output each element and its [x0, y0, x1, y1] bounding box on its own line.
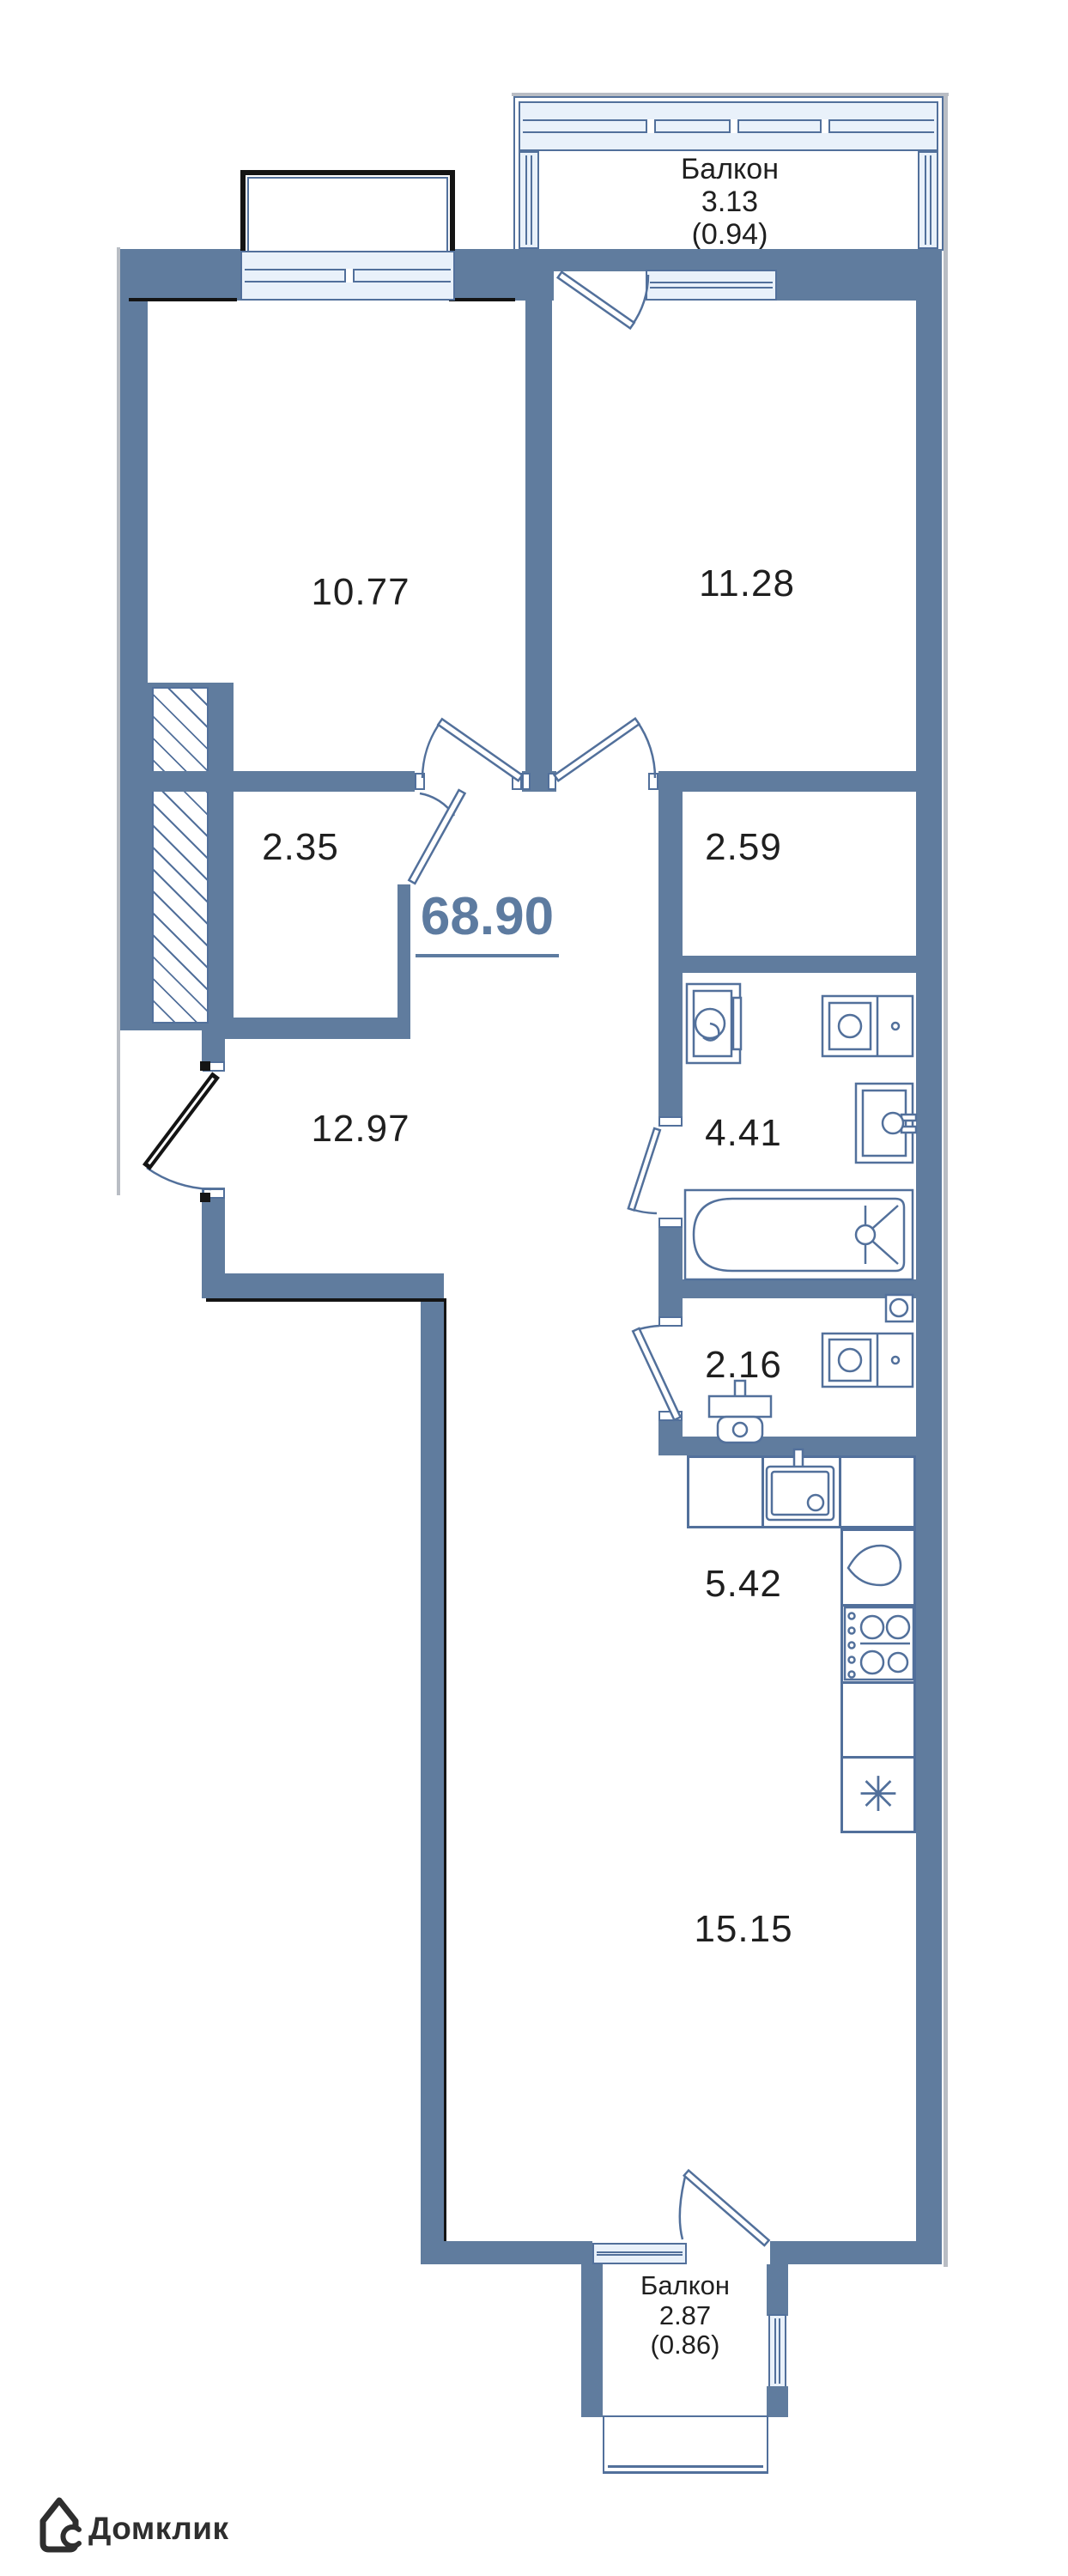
- door-balcony-bottom: [680, 2171, 769, 2245]
- total-area-value: 68.90: [416, 886, 559, 957]
- plan-overlay: [0, 0, 1068, 2576]
- room-area-label: 4.41: [683, 1112, 804, 1155]
- washing-machine-icon: [687, 984, 741, 1063]
- logo-text: Домклик: [88, 2511, 229, 2547]
- bathtub-icon: [685, 1190, 913, 1279]
- vanity-sink-icon: [822, 996, 913, 1056]
- door-closet: [409, 790, 464, 884]
- cooktop-icon: [845, 1607, 913, 1680]
- room-area-label: 15.15: [666, 1908, 821, 1951]
- floor-plan: Балкон 3.13 (0.94): [0, 0, 1068, 2576]
- room-area-label: 12.97: [292, 1108, 429, 1151]
- water-heater-icon: [856, 1084, 916, 1163]
- door-room-10-77: [422, 719, 522, 781]
- room-area-label: 10.77: [283, 571, 438, 614]
- room-area-label: 2.59: [683, 826, 804, 869]
- entrance-door: [143, 1072, 220, 1189]
- door-room-11-28: [555, 719, 655, 781]
- toilet-icon: [709, 1381, 771, 1443]
- total-area-label: 68.90: [386, 886, 588, 957]
- house-logo-icon: [43, 2500, 83, 2549]
- fridge-icon: [848, 1546, 901, 1585]
- vent-icon: [886, 1295, 913, 1321]
- room-area-label: 2.16: [683, 1344, 804, 1387]
- door-bathroom: [628, 1128, 660, 1213]
- kitchen-sink-icon: [767, 1449, 834, 1520]
- room-area-label: 2.35: [240, 826, 361, 869]
- vanity-sink-icon: [822, 1334, 913, 1387]
- room-area-label: 11.28: [670, 562, 824, 605]
- door-balcony-top: [558, 272, 648, 329]
- room-area-label: 5.42: [683, 1563, 804, 1606]
- door-wc: [633, 1326, 680, 1420]
